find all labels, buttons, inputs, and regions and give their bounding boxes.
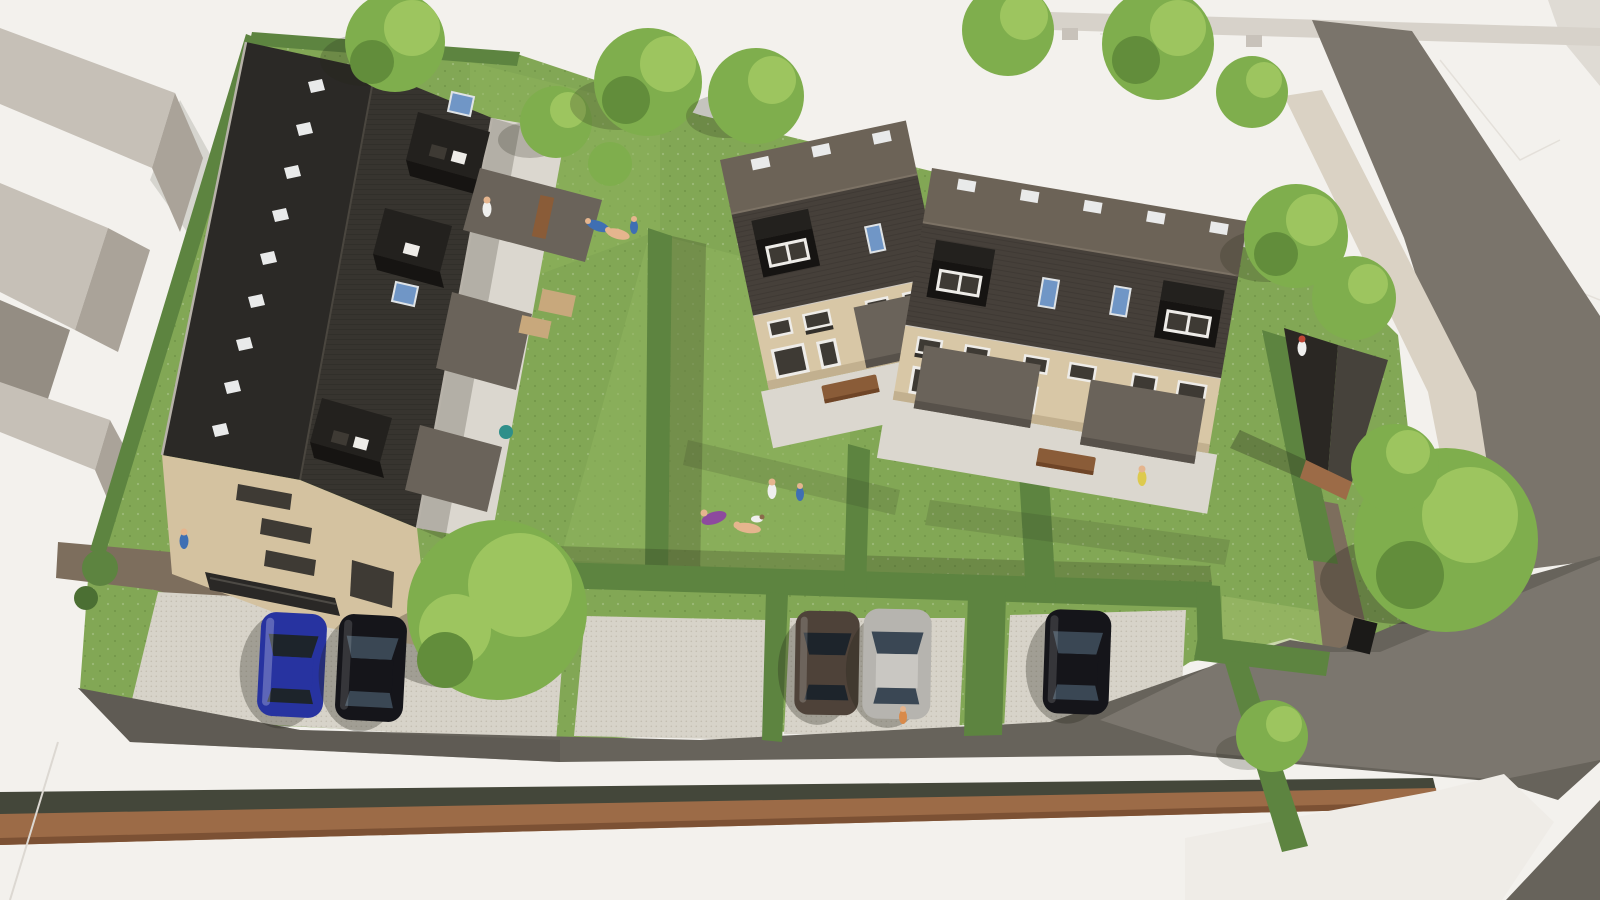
child-lawn [796, 483, 804, 501]
hedge-garden-divider-long [645, 228, 672, 578]
terrace-block-2 [877, 167, 1257, 514]
dormer [751, 209, 820, 278]
context-wall-pier [1246, 35, 1262, 47]
hedge-garden-divider-1 [844, 444, 870, 592]
dormer [1154, 280, 1225, 348]
person-lawn [768, 479, 777, 500]
blue-roof-window [1039, 278, 1059, 308]
child [630, 216, 638, 234]
tree [588, 142, 632, 186]
tree [1216, 56, 1288, 128]
person-patio [483, 197, 492, 218]
bush [74, 586, 98, 610]
person-path-east [1298, 336, 1307, 357]
tree [1312, 256, 1396, 340]
dormer [926, 240, 995, 307]
site-plan-rendering [0, 0, 1600, 900]
bush [82, 550, 118, 586]
person-patio-east [1138, 466, 1147, 487]
context-wall-pier [1062, 28, 1078, 40]
person-west-corner [180, 529, 189, 550]
parasol [499, 425, 513, 439]
hedge-parking-separator-2 [964, 594, 1006, 736]
architectural-render [0, 0, 1600, 900]
child-road [899, 706, 907, 724]
blue-roof-window [1110, 286, 1130, 316]
